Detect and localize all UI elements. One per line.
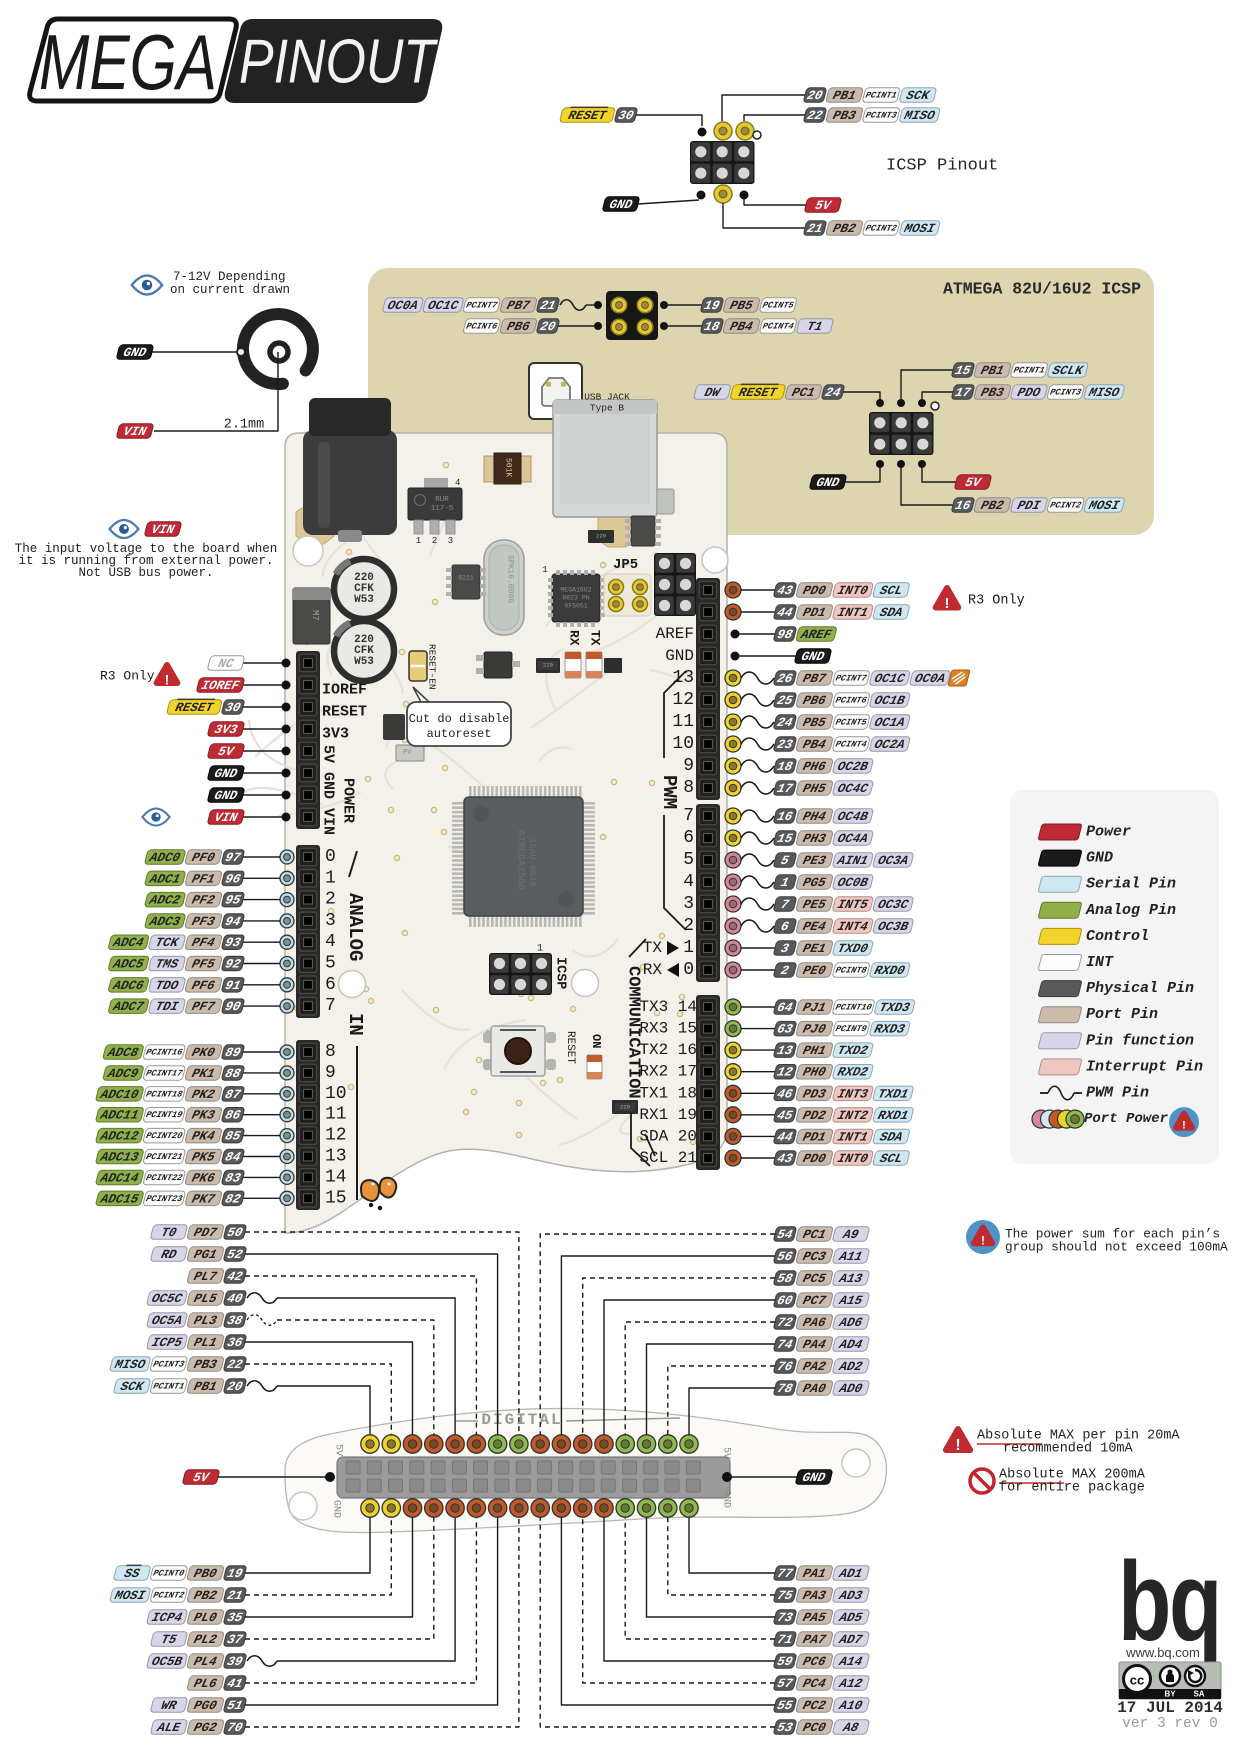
svg-text:Cut do disable: Cut do disable	[409, 712, 510, 726]
svg-text:TXD0: TXD0	[836, 941, 870, 956]
svg-text:PK7: PK7	[190, 1191, 217, 1206]
svg-text:GND: GND	[331, 1500, 342, 1518]
svg-text:ADC2: ADC2	[147, 893, 182, 908]
svg-text:PCINT8: PCINT8	[834, 966, 868, 976]
svg-text:AD2: AD2	[837, 1359, 865, 1374]
svg-text:DIGITAL: DIGITAL	[481, 1411, 562, 1429]
svg-text:R3 Only: R3 Only	[100, 669, 155, 684]
svg-text:Type B: Type B	[590, 403, 625, 414]
svg-text:AIN1: AIN1	[835, 853, 870, 868]
svg-text:PCINT2: PCINT2	[152, 1591, 186, 1601]
svg-text:INT4: INT4	[836, 919, 870, 934]
svg-text:RXD2: RXD2	[836, 1065, 870, 1080]
svg-text:INT3: INT3	[836, 1086, 870, 1101]
svg-text:PL1: PL1	[192, 1335, 218, 1350]
svg-text:5: 5	[325, 954, 336, 974]
svg-text:PB2: PB2	[831, 221, 858, 236]
svg-text:PCINT21: PCINT21	[145, 1152, 184, 1162]
svg-text:PA6: PA6	[801, 1315, 828, 1330]
svg-text:INT2: INT2	[836, 1108, 870, 1123]
svg-text:ADC3: ADC3	[147, 914, 182, 929]
svg-text:AREF: AREF	[798, 627, 833, 642]
svg-text:PCINT6: PCINT6	[465, 322, 498, 332]
svg-text:0823 PH: 0823 PH	[562, 595, 589, 602]
svg-text:PWM Pin: PWM Pin	[1086, 1085, 1149, 1102]
svg-text:ATMEGA2560: ATMEGA2560	[515, 830, 526, 890]
svg-text:OC2B: OC2B	[836, 759, 870, 774]
svg-text:autoreset: autoreset	[427, 727, 492, 741]
svg-text:SA: SA	[1193, 1690, 1204, 1699]
svg-text:ADC1: ADC1	[147, 871, 182, 886]
svg-text:1: 1	[325, 868, 336, 888]
svg-text:OC3B: OC3B	[876, 919, 910, 934]
svg-text:JP5: JP5	[613, 557, 638, 573]
svg-text:PCINT7: PCINT7	[465, 301, 499, 311]
svg-text:!: !	[1182, 1120, 1186, 1132]
svg-text:PDI: PDI	[1016, 498, 1043, 513]
svg-text:PA1: PA1	[801, 1566, 827, 1581]
svg-text:PC5: PC5	[801, 1271, 828, 1286]
svg-text:PK0: PK0	[190, 1045, 217, 1060]
svg-text:ADC4: ADC4	[111, 935, 146, 950]
svg-text:2: 2	[325, 890, 336, 910]
svg-text:PCINT3: PCINT3	[1049, 388, 1083, 398]
svg-text:PCINT3: PCINT3	[152, 1360, 186, 1370]
svg-text:OC1A: OC1A	[873, 715, 907, 730]
svg-text:ADC15: ADC15	[98, 1191, 141, 1206]
svg-text:PC2: PC2	[801, 1698, 828, 1713]
svg-text:PG2: PG2	[192, 1720, 219, 1735]
svg-text:PC7: PC7	[801, 1293, 828, 1308]
svg-text:ADC5: ADC5	[111, 957, 146, 972]
svg-text:ADC12: ADC12	[98, 1129, 141, 1144]
svg-text:PCINT23: PCINT23	[145, 1194, 184, 1204]
svg-text:PB7: PB7	[801, 671, 828, 686]
svg-text:A15: A15	[837, 1293, 865, 1308]
svg-text:ADC10: ADC10	[98, 1087, 141, 1102]
svg-text:11: 11	[672, 712, 694, 732]
svg-text:OC1C: OC1C	[873, 671, 907, 686]
svg-text:Pin function: Pin function	[1086, 1032, 1194, 1049]
svg-text:SCL: SCL	[878, 1151, 904, 1166]
svg-text:PE4: PE4	[801, 919, 828, 934]
svg-text:PB5: PB5	[728, 298, 755, 313]
svg-text:PE3: PE3	[801, 853, 828, 868]
svg-text:MOSI: MOSI	[1086, 498, 1121, 513]
svg-text:VIN: VIN	[122, 424, 149, 439]
svg-text:7: 7	[683, 806, 694, 826]
svg-text:0: 0	[325, 847, 336, 867]
svg-text:PD0: PD0	[801, 1151, 828, 1166]
svg-text:PF5: PF5	[190, 957, 217, 972]
svg-text:11: 11	[325, 1105, 347, 1125]
svg-text:RXD3: RXD3	[873, 1022, 907, 1037]
svg-text:MOSI: MOSI	[112, 1588, 147, 1603]
svg-text:PK2: PK2	[190, 1087, 217, 1102]
svg-text:PF7: PF7	[190, 999, 217, 1014]
svg-text:A13: A13	[837, 1271, 865, 1286]
svg-text:TDI: TDI	[154, 999, 181, 1014]
svg-text:PB0: PB0	[192, 1566, 219, 1581]
svg-text:VIN: VIN	[213, 810, 240, 825]
svg-text:PC3: PC3	[801, 1249, 828, 1264]
svg-text:PA7: PA7	[801, 1632, 828, 1647]
svg-text:PF2: PF2	[190, 893, 217, 908]
svg-text:RXD1: RXD1	[876, 1108, 910, 1123]
svg-text:3: 3	[683, 894, 694, 914]
svg-text:A12: A12	[837, 1676, 865, 1691]
svg-text:PL4: PL4	[192, 1654, 219, 1669]
svg-text:PG0: PG0	[192, 1698, 219, 1713]
svg-text:AD1: AD1	[837, 1566, 864, 1581]
svg-text:ver 3 rev 0: ver 3 rev 0	[1122, 1716, 1218, 1732]
svg-text:GND: GND	[801, 1470, 828, 1485]
svg-text:RESET: RESET	[737, 385, 780, 400]
svg-text:OC1B: OC1B	[873, 693, 907, 708]
svg-text:PC0: PC0	[801, 1720, 828, 1735]
svg-text:W53: W53	[354, 656, 374, 668]
svg-text:15: 15	[325, 1188, 347, 1208]
svg-text:PWM: PWM	[658, 775, 680, 809]
svg-text:ADC7: ADC7	[111, 999, 146, 1014]
svg-text:Interrupt Pin: Interrupt Pin	[1086, 1058, 1203, 1075]
svg-text:PCINT10: PCINT10	[834, 1003, 873, 1013]
svg-text:PH0: PH0	[801, 1065, 828, 1080]
svg-text:PC6: PC6	[801, 1654, 828, 1669]
svg-text:PC1: PC1	[801, 1227, 827, 1242]
svg-text:SDA: SDA	[878, 605, 904, 620]
svg-text:AD3: AD3	[837, 1588, 865, 1603]
svg-text:OC3A: OC3A	[876, 853, 910, 868]
svg-text:PB3: PB3	[979, 385, 1006, 400]
svg-text:PA5: PA5	[801, 1610, 828, 1625]
svg-text:PK3: PK3	[190, 1108, 217, 1123]
svg-text:RX2 17: RX2 17	[639, 1063, 697, 1081]
svg-text:PCINT16: PCINT16	[145, 1048, 184, 1058]
svg-text:A11: A11	[837, 1249, 864, 1264]
svg-text:!: !	[955, 1437, 960, 1454]
svg-text:8211: 8211	[458, 575, 474, 582]
svg-text:OC5A: OC5A	[150, 1313, 184, 1328]
svg-text:PA3: PA3	[801, 1588, 828, 1603]
svg-text:9: 9	[325, 1063, 336, 1083]
svg-text:PK5: PK5	[190, 1150, 217, 1165]
svg-text:3: 3	[448, 536, 453, 546]
svg-text:PJ1: PJ1	[801, 1000, 827, 1015]
svg-text:GND: GND	[213, 788, 240, 803]
svg-text:cc: cc	[1130, 1673, 1144, 1688]
svg-text:PA0: PA0	[801, 1381, 828, 1396]
svg-text:4: 4	[455, 478, 460, 488]
svg-text:INT0: INT0	[836, 1151, 870, 1166]
svg-text:PH1: PH1	[801, 1043, 827, 1058]
svg-text:PCINT5: PCINT5	[834, 718, 868, 728]
svg-text:POWER: POWER	[340, 778, 357, 823]
svg-text:!: !	[981, 1234, 985, 1248]
svg-text:PB7: PB7	[505, 298, 532, 313]
svg-text:9: 9	[683, 756, 694, 776]
svg-text:recommended 10mA: recommended 10mA	[1003, 1442, 1134, 1457]
svg-text:13: 13	[672, 668, 694, 688]
svg-text:!: !	[165, 672, 170, 688]
svg-text:7: 7	[325, 996, 336, 1016]
svg-text:RUR: RUR	[435, 496, 449, 504]
svg-text:4: 4	[683, 872, 694, 892]
svg-text:4: 4	[325, 932, 336, 952]
svg-text:TXD1: TXD1	[876, 1086, 910, 1101]
svg-text:IOREF: IOREF	[200, 678, 242, 693]
svg-text:ADC11: ADC11	[98, 1108, 140, 1123]
svg-text:W53: W53	[354, 594, 374, 606]
svg-text:ADC0: ADC0	[147, 850, 182, 865]
svg-text:RX: RX	[567, 630, 582, 646]
svg-text:!: !	[945, 595, 950, 612]
svg-text:PL2: PL2	[192, 1632, 219, 1647]
svg-text:ADC9: ADC9	[105, 1066, 140, 1081]
svg-text:MEGA: MEGA	[39, 18, 217, 106]
svg-text:RESET: RESET	[174, 700, 217, 715]
svg-text:220: 220	[596, 533, 606, 540]
svg-text:8: 8	[325, 1042, 336, 1062]
svg-text:AREF: AREF	[656, 625, 694, 643]
svg-text:OC4B: OC4B	[836, 809, 870, 824]
svg-text:Port Pin: Port Pin	[1086, 1006, 1158, 1023]
svg-text:PH6: PH6	[801, 759, 828, 774]
svg-text:1: 1	[416, 536, 421, 546]
svg-text:PK6: PK6	[190, 1171, 217, 1186]
svg-text:OC4C: OC4C	[836, 781, 870, 796]
svg-text:PCINT22: PCINT22	[145, 1173, 184, 1183]
svg-text:PD7: PD7	[192, 1225, 219, 1240]
svg-text:OC1C: OC1C	[426, 298, 460, 313]
svg-text:PB6: PB6	[801, 693, 828, 708]
svg-text:PA4: PA4	[801, 1337, 828, 1352]
svg-text:PCINT3: PCINT3	[864, 111, 898, 121]
svg-text:PCINT20: PCINT20	[145, 1131, 184, 1141]
svg-text:PB1: PB1	[192, 1379, 218, 1394]
svg-text:1: 1	[537, 944, 543, 955]
svg-text:220: 220	[620, 1104, 630, 1111]
svg-text:5V: 5V	[333, 1444, 344, 1456]
svg-text:AD4: AD4	[837, 1337, 865, 1352]
svg-text:OC4A: OC4A	[836, 831, 870, 846]
svg-text:7-12V Depending: 7-12V Depending	[173, 270, 286, 284]
svg-text:Power: Power	[1086, 824, 1131, 841]
svg-text:TXD3: TXD3	[878, 1000, 912, 1015]
svg-text:PCINT1: PCINT1	[864, 91, 897, 101]
svg-text:117-5: 117-5	[431, 505, 454, 513]
svg-text:AD6: AD6	[837, 1315, 865, 1330]
svg-text:ICP5: ICP5	[150, 1335, 184, 1350]
svg-text:TX1 18: TX1 18	[639, 1084, 697, 1102]
svg-text:RX1 19: RX1 19	[639, 1106, 697, 1124]
svg-text:12: 12	[672, 690, 694, 710]
svg-text:ALE: ALE	[155, 1720, 183, 1735]
svg-text:RESET: RESET	[322, 704, 367, 721]
svg-text:5: 5	[683, 850, 694, 870]
svg-text:RESET: RESET	[567, 108, 610, 123]
svg-text:5V GND VIN: 5V GND VIN	[320, 745, 337, 835]
svg-text:A10: A10	[837, 1698, 865, 1713]
svg-text:PB2: PB2	[979, 498, 1006, 513]
svg-text:INT1: INT1	[836, 1130, 870, 1145]
svg-text:BY: BY	[1164, 1690, 1176, 1699]
svg-text:GND: GND	[213, 766, 240, 781]
svg-text:ICSP: ICSP	[553, 957, 568, 989]
svg-text:OC2A: OC2A	[873, 737, 907, 752]
svg-text:10: 10	[325, 1084, 347, 1104]
svg-text:USB JACK: USB JACK	[584, 392, 630, 403]
svg-text:RX3 15: RX3 15	[639, 1020, 697, 1038]
svg-text:TMS: TMS	[154, 957, 181, 972]
svg-text:Analog Pin: Analog Pin	[1085, 902, 1176, 919]
svg-text:TX3 14: TX3 14	[639, 998, 697, 1016]
svg-text:PF6: PF6	[190, 978, 217, 993]
svg-text:OC0A: OC0A	[386, 298, 420, 313]
svg-text:ADC6: ADC6	[111, 978, 146, 993]
svg-text:group should not exceed 100mA: group should not exceed 100mA	[1005, 1240, 1228, 1255]
svg-text:13: 13	[325, 1147, 347, 1167]
svg-text:MOSI: MOSI	[902, 221, 937, 236]
svg-text:PB6: PB6	[505, 319, 532, 334]
svg-text:PL5: PL5	[192, 1291, 219, 1306]
svg-text:17 JUL 2014: 17 JUL 2014	[1117, 1699, 1223, 1717]
svg-text:3V3: 3V3	[213, 722, 240, 737]
svg-text:OC0B: OC0B	[836, 875, 870, 890]
svg-text:PF1: PF1	[190, 871, 216, 886]
svg-text:ADC8: ADC8	[105, 1045, 140, 1060]
svg-text:12: 12	[325, 1126, 347, 1146]
svg-text:OC5C: OC5C	[150, 1291, 184, 1306]
svg-text:INT5: INT5	[836, 897, 870, 912]
svg-text:PK4: PK4	[190, 1129, 217, 1144]
svg-text:PH4: PH4	[801, 809, 828, 824]
svg-text:PCINT4: PCINT4	[834, 740, 867, 750]
svg-text:for entire package: for entire package	[999, 1481, 1145, 1496]
svg-text:MISO: MISO	[1086, 385, 1121, 400]
svg-text:PL7: PL7	[192, 1269, 219, 1284]
svg-text:PCINT6: PCINT6	[834, 696, 867, 706]
svg-text:SCL: SCL	[878, 583, 904, 598]
svg-text:6: 6	[683, 828, 694, 848]
svg-text:AD7: AD7	[837, 1632, 865, 1647]
svg-text:PCINT2: PCINT2	[864, 224, 898, 234]
svg-text:M7: M7	[310, 610, 320, 621]
svg-text:GND: GND	[721, 1490, 732, 1508]
svg-text:ATMEGA 82U/16U2 ICSP: ATMEGA 82U/16U2 ICSP	[943, 280, 1141, 299]
svg-text:GND: GND	[1086, 850, 1113, 867]
svg-text:TXD2: TXD2	[836, 1043, 870, 1058]
svg-text:PE1: PE1	[801, 941, 827, 956]
svg-text:R3 Only: R3 Only	[968, 594, 1025, 609]
svg-text:PD3: PD3	[801, 1086, 828, 1101]
svg-text:PH5: PH5	[801, 781, 828, 796]
svg-text:SDA: SDA	[878, 1130, 904, 1145]
svg-text:PG1: PG1	[192, 1247, 218, 1262]
svg-text:9F5051: 9F5051	[564, 603, 588, 610]
svg-text:8: 8	[683, 778, 694, 798]
svg-text:PDO: PDO	[1016, 385, 1043, 400]
svg-text:Port Power: Port Power	[1084, 1111, 1169, 1127]
svg-text:PA2: PA2	[801, 1359, 828, 1374]
svg-text:COMMUNICATION: COMMUNICATION	[624, 966, 643, 1099]
svg-text:PB4: PB4	[728, 319, 755, 334]
svg-text:5V: 5V	[721, 1447, 732, 1459]
svg-text:RESET-EN: RESET-EN	[427, 644, 438, 690]
svg-text:PB1: PB1	[979, 363, 1005, 378]
svg-text:PD2: PD2	[801, 1108, 828, 1123]
svg-text:MISO: MISO	[112, 1357, 147, 1372]
svg-text:PCINT1: PCINT1	[152, 1382, 185, 1392]
svg-text:ADC14: ADC14	[98, 1171, 141, 1186]
svg-text:10: 10	[672, 734, 694, 754]
svg-text:3V3: 3V3	[322, 726, 349, 743]
svg-text:PJ0: PJ0	[801, 1022, 828, 1037]
svg-text:PE5: PE5	[801, 897, 828, 912]
svg-text:PCINT9: PCINT9	[834, 1024, 867, 1034]
svg-text:PF0: PF0	[190, 850, 217, 865]
svg-text:GND: GND	[800, 649, 827, 664]
svg-text:PB5: PB5	[801, 715, 828, 730]
svg-text:AD5: AD5	[837, 1610, 865, 1625]
svg-text:A14: A14	[837, 1654, 865, 1669]
svg-text:www.bq.com: www.bq.com	[1125, 1645, 1200, 1660]
svg-text:PH3: PH3	[801, 831, 828, 846]
svg-text:PB2: PB2	[192, 1588, 219, 1603]
svg-text:GND: GND	[815, 475, 842, 490]
svg-text:RX: RX	[643, 961, 663, 979]
svg-text:PCINT18: PCINT18	[145, 1089, 184, 1099]
svg-text:1: 1	[542, 565, 547, 575]
svg-text:PCINT5: PCINT5	[761, 301, 795, 311]
svg-text:INT1: INT1	[836, 605, 870, 620]
svg-text:PCINT2: PCINT2	[1049, 501, 1083, 511]
svg-text:PF4: PF4	[190, 935, 217, 950]
svg-text:RESET: RESET	[564, 1031, 576, 1064]
svg-text:PB3: PB3	[192, 1357, 219, 1372]
svg-text:PB1: PB1	[831, 88, 857, 103]
svg-text:2: 2	[683, 916, 694, 936]
svg-text:MEGA16U2: MEGA16U2	[560, 587, 591, 594]
svg-text:OC3C: OC3C	[876, 897, 910, 912]
svg-text:SCLK: SCLK	[1051, 363, 1086, 378]
svg-text:14: 14	[325, 1167, 347, 1187]
svg-text:TX: TX	[588, 630, 603, 646]
svg-text:MISO: MISO	[902, 108, 937, 123]
svg-text:TX2 16: TX2 16	[639, 1041, 697, 1059]
svg-text:PL6: PL6	[192, 1676, 219, 1691]
svg-text:INT0: INT0	[836, 583, 870, 598]
svg-text:PCINT19: PCINT19	[145, 1110, 184, 1120]
svg-text:AD0: AD0	[837, 1381, 865, 1396]
svg-text:PB4: PB4	[801, 737, 828, 752]
svg-text:PL0: PL0	[192, 1610, 219, 1625]
svg-text:on current drawn: on current drawn	[170, 283, 290, 297]
svg-text:VIN: VIN	[150, 522, 177, 537]
svg-text:Not USB bus power.: Not USB bus power.	[78, 566, 213, 580]
svg-text:PK1: PK1	[190, 1066, 216, 1081]
svg-text:ADC13: ADC13	[98, 1150, 141, 1165]
svg-text:PV: PV	[403, 749, 412, 757]
svg-text:3: 3	[325, 911, 336, 931]
svg-text:PCINT7: PCINT7	[834, 674, 868, 684]
svg-text:GND: GND	[608, 197, 635, 212]
svg-text:PCINT1: PCINT1	[1012, 366, 1045, 376]
svg-text:2: 2	[432, 536, 437, 546]
svg-text:RXD0: RXD0	[873, 963, 907, 978]
svg-text:PINOUT: PINOUT	[239, 28, 438, 97]
svg-text:TDO: TDO	[154, 978, 181, 993]
